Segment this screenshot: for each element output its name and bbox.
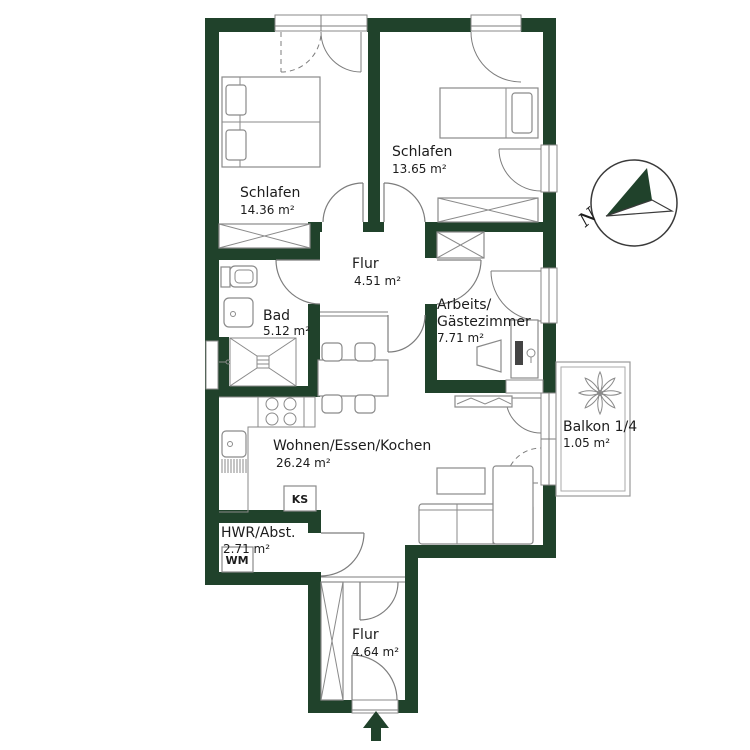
room-label: Schlafen [392,144,452,160]
room-label: Flur [352,627,379,643]
door-bedroom1 [323,183,363,222]
stove-icon [266,398,296,425]
drainer-hatch [222,459,246,473]
room-area: 7.71 m² [437,331,484,345]
shower-icon [219,338,296,386]
room-area: 2.71 m² [223,542,270,556]
room-label: Wohnen/Essen/Kochen [273,438,431,454]
wardrobe-icon [438,198,538,222]
room-label: Balkon 1/4 [563,419,637,435]
room-area: 4.64 m² [352,645,399,659]
room-label: Bad [263,308,290,324]
dining-table-icon [318,343,388,413]
room-flur-upper: Flur 4.51 m² [352,256,401,288]
door-bedroom2 [384,183,425,222]
fridge-label: KS [292,493,309,506]
wardrobe-icon [321,582,343,700]
room-bad: Bad 5.12 m² [263,308,310,338]
room-label: Gästezimmer [437,314,531,330]
room-area: 14.36 m² [240,203,295,217]
entrance-door [352,655,398,713]
room-area: 26.24 m² [276,456,331,470]
french-window-top-left [275,15,367,72]
room-area: 5.12 m² [263,324,310,338]
room-label: Flur [352,256,379,272]
room-area: 1.05 m² [563,436,610,450]
entrance-arrow-icon [363,711,389,741]
double-bed-icon [222,77,320,167]
room-label: HWR/Abst. [221,525,296,541]
kitchen-sink-icon [222,431,246,473]
room-area: 4.51 m² [354,274,401,288]
door-hwr [321,533,364,576]
room-area: 13.65 m² [392,162,447,176]
coffee-table-icon [437,468,485,494]
single-bed-icon [440,88,538,138]
toilet-icon [221,266,257,287]
room-flur-lower: Flur 4.64 m² [352,627,399,659]
window-bedroom2-right [499,145,557,192]
room-schlafen-1: Schlafen 14.36 m² [240,185,300,217]
room-wohnen: Wohnen/Essen/Kochen 26.24 m² [273,438,431,470]
floor-plan-svg: KS WM [0,0,750,750]
room-label: Schlafen [240,185,300,201]
floor-plan-image: KS WM [0,0,750,750]
sink-icon [224,298,253,327]
room-schlafen-2: Schlafen 13.65 m² [392,144,452,176]
door-bad [276,260,320,304]
radiator-icon [455,396,512,407]
fridge-box: KS [284,486,316,511]
wardrobe-icon [219,224,310,248]
wardrobe-icon [437,232,484,258]
compass-icon: N [574,160,677,246]
window-top-right [471,15,521,82]
room-hwr: HWR/Abst. 2.71 m² [221,525,296,556]
room-label: Arbeits/ [437,297,492,313]
